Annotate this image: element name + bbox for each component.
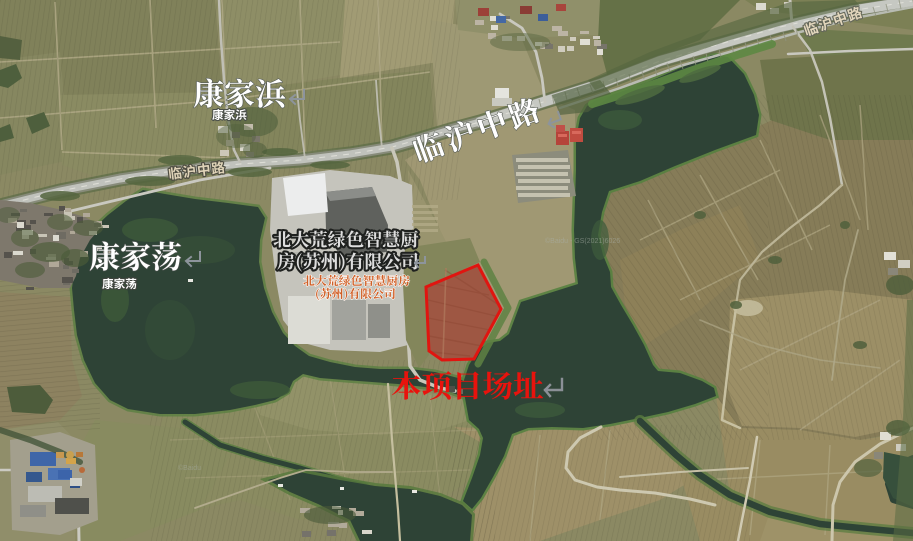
svg-text:©Baidu - GS(2021)6026: ©Baidu - GS(2021)6026 — [545, 237, 620, 245]
svg-text:©Baidu: ©Baidu — [178, 464, 201, 472]
